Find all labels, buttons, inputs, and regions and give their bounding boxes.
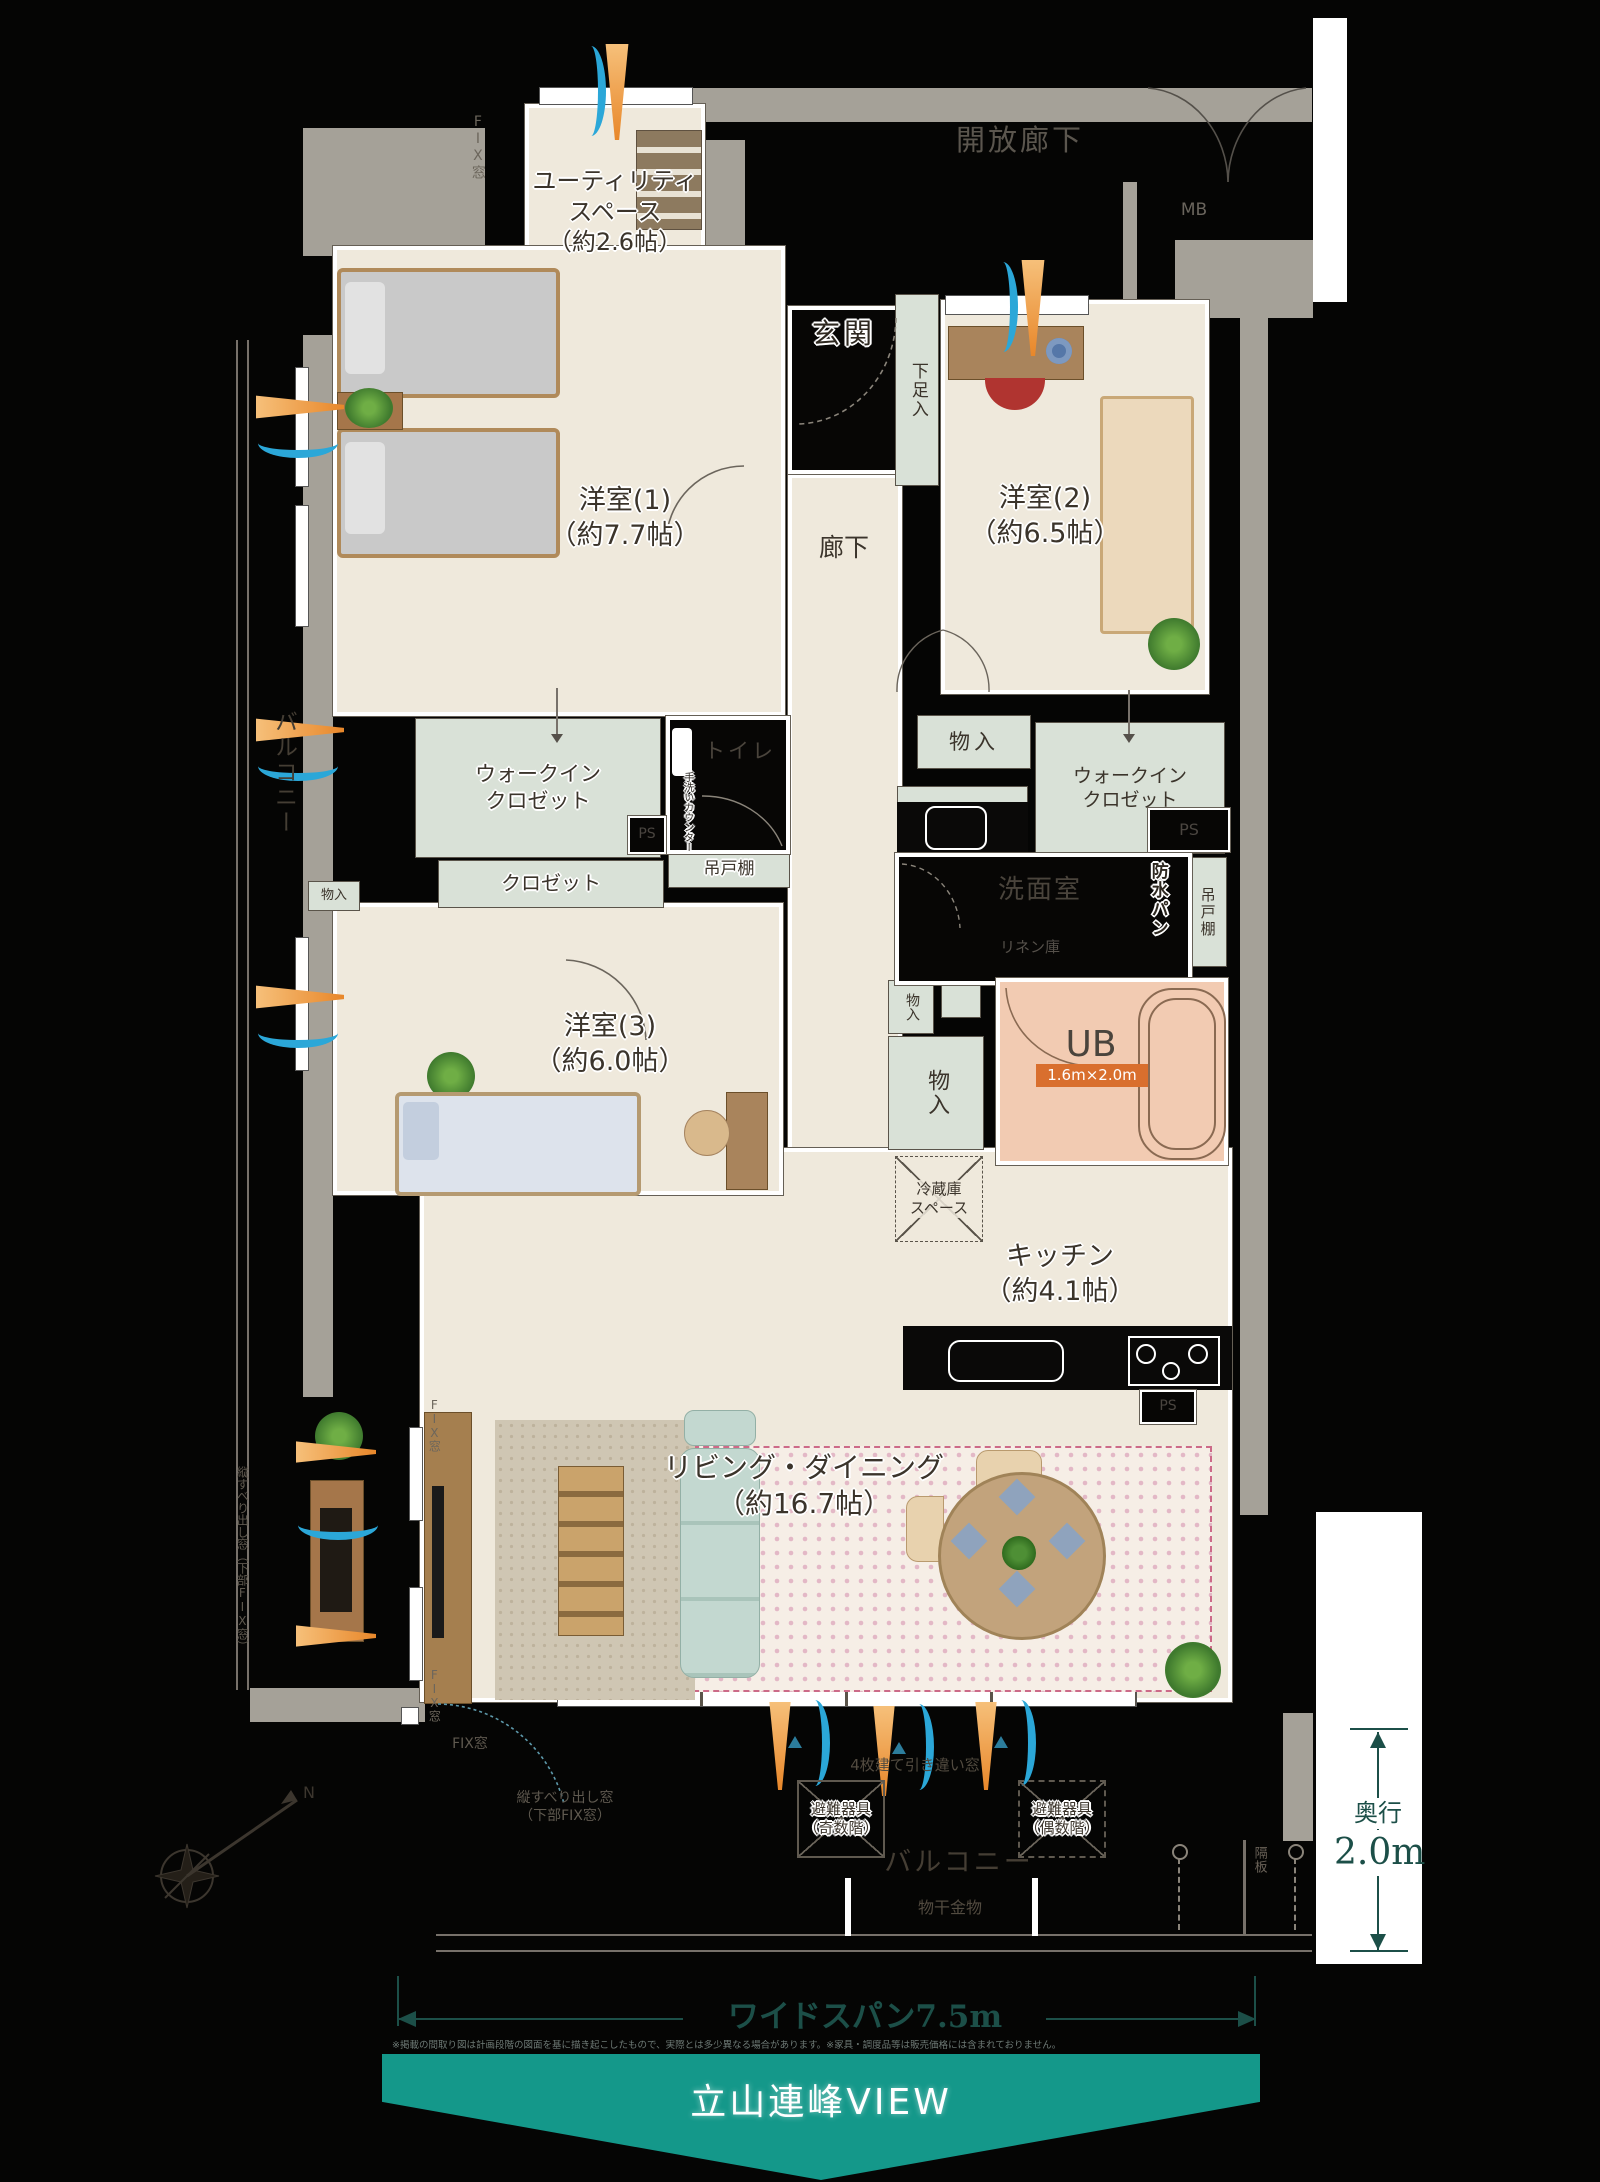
window-ld-left-upper (410, 1428, 422, 1520)
partition-divider (1243, 1840, 1246, 1935)
storage-top-label: 物入 (949, 729, 999, 756)
cupboard-toilet: 吊戸棚 (668, 852, 790, 888)
vent-blue-room1a (258, 428, 338, 458)
arc-mb-doors (1142, 84, 1312, 186)
room-corridor (788, 474, 902, 1156)
room2-label: 洋室(2)（約6.5帖） (910, 482, 1180, 551)
ps-box-a: PS (628, 816, 666, 854)
disclaimer-text: ※掲載の間取り図は計画段階の図面を基に描き起こしたもので、実際とは多少異なる場合… (392, 2040, 1258, 2052)
plant-room2 (1148, 618, 1200, 670)
shoe-box-label: 下足入 (906, 362, 928, 419)
widespan-arrow-right (1238, 2011, 1256, 2027)
desk-room3 (726, 1092, 768, 1190)
depth-arrow-up (1370, 1732, 1386, 1748)
stove-burner-1 (1136, 1344, 1156, 1364)
room1-label: 洋室(1)（約7.7帖） (455, 484, 795, 553)
closet-strip: クロゼット (438, 860, 664, 908)
window-room1-upper (296, 368, 308, 486)
storage-top: 物入 (917, 715, 1031, 769)
balcony-left-label: バルコニー (268, 710, 297, 835)
stove-burner-3 (1162, 1362, 1180, 1380)
floor-plan: ウォークインクロゼット クロゼット 物入 下足入 物入 ウォークインクロゼット … (0, 0, 1600, 2182)
laundry-pole-left (845, 1878, 851, 1936)
wall-strip-right (1240, 300, 1268, 1515)
bed-room3-pillow (403, 1102, 439, 1160)
shoe-box: 下足入 (895, 294, 939, 486)
balcony-bottom-label: バルコニー (874, 1846, 1044, 1881)
ps-box-kitchen: PS (1140, 1390, 1196, 1424)
depth-dim-tick-bottom (1350, 1950, 1408, 1952)
cd-player (1046, 338, 1072, 364)
depth-dim-tick-top (1350, 1728, 1408, 1730)
living-label: リビング・ダイニング（約16.7帖） (614, 1450, 994, 1522)
kitchen-sink (948, 1340, 1064, 1382)
fridge-space: 冷蔵庫スペース (895, 1156, 983, 1242)
view-banner: 立山連峰VIEW (382, 2054, 1260, 2180)
bed-2-pillow (345, 442, 385, 534)
wic-left: ウォークインクロゼット (415, 718, 661, 858)
fix-window-top-label: FIX窓 (468, 114, 486, 180)
room3-label: 洋室(3)（約6.0帖） (470, 1010, 750, 1079)
fix-window-ld-lower-label: FIX窓 (426, 1668, 441, 1722)
laundry-hardware-label: 物干金物 (900, 1898, 1000, 1918)
tv (432, 1486, 444, 1638)
wic-right-label: ウォークインクロゼット (1073, 764, 1187, 813)
depth-arrow-down (1370, 1934, 1386, 1950)
mb-label: MB (1172, 200, 1216, 222)
widespan-line-left (398, 2018, 683, 2020)
wall-pillar-mb (1123, 182, 1137, 300)
plant-ld-corner (1165, 1642, 1221, 1698)
storage-room3-label: 物入 (321, 888, 347, 905)
wic-right-arrow-line (1128, 690, 1130, 736)
white-column-bottom-right (1316, 1512, 1422, 1964)
compass-icon: N (125, 1778, 325, 1913)
fix-window-corner-label: FIX窓 (440, 1736, 500, 1754)
vent-blue-ld-2 (904, 1704, 934, 1790)
white-column-top-right (1313, 18, 1347, 302)
fix-window-ld-upper-label: FIX窓 (426, 1398, 441, 1452)
sofa-cushion (684, 1410, 756, 1446)
sliding-window4-label: 4枚建て引き違い窓 (845, 1756, 985, 1775)
ub-label: UB (1036, 1022, 1146, 1068)
wall-wedge-bottom-left (250, 1688, 425, 1722)
vent-blue-ld-3 (1006, 1700, 1036, 1786)
widespan-label: ワイドスパン7.5m (688, 1998, 1042, 2038)
evac-box-odd: 避難器具（奇数階） (797, 1780, 885, 1858)
table-plant (1002, 1536, 1036, 1570)
evac-odd-label: 避難器具（奇数階） (803, 1800, 878, 1838)
hanger-right-line (1294, 1858, 1296, 1930)
stove-burner-2 (1188, 1344, 1208, 1364)
chair-room3 (684, 1110, 730, 1156)
arc-washroom-door (898, 860, 964, 932)
vanity-sink (925, 806, 987, 850)
ps-b-label: PS (1179, 820, 1199, 840)
bed-1-pillow (345, 282, 385, 374)
ps-kitchen-label: PS (1159, 1398, 1176, 1416)
wic-left-arrow-line (556, 688, 558, 736)
depth-label: 奥行 (1342, 1798, 1414, 1829)
hallway-label: 廊下 (788, 532, 900, 564)
tate-window-label: 縦すべり出し窓（下部FIX窓） (490, 1790, 640, 1826)
linen-label: リネン庫 (975, 938, 1085, 957)
vent-blue-ld-left (298, 1510, 378, 1540)
wic-right-arrow-head (1123, 734, 1135, 743)
vent-teal-ld-1 (788, 1736, 802, 1748)
vent-blue-ld-1 (800, 1700, 830, 1786)
view-banner-label: 立山連峰VIEW (382, 2080, 1260, 2126)
ps-box-b: PS (1148, 808, 1230, 852)
bathtub-inner (1148, 998, 1216, 1150)
open-corridor-label: 開放廊下 (930, 122, 1110, 159)
genkan-label: 玄関 (796, 316, 892, 352)
wall-block-top-left (303, 128, 485, 256)
toilet-fixture (672, 728, 692, 776)
vent-teal-ld-2 (892, 1742, 906, 1754)
evac-even-label: 避難器具（偶数階） (1024, 1800, 1099, 1838)
vent-blue-utility (576, 46, 606, 136)
compass-n-glyph: N (303, 1783, 315, 1802)
window-room3 (296, 938, 308, 1070)
toilet-label: トイレ (694, 738, 786, 765)
cupboard-wash: 吊戸棚 (1187, 857, 1227, 967)
vent-teal-ld-3 (994, 1736, 1008, 1748)
ub-size-tag: 1.6m×2.0m (1036, 1064, 1148, 1087)
widespan-line-right (1046, 2018, 1256, 2020)
ps-a-label: PS (638, 826, 655, 844)
vent-blue-room3 (258, 1018, 338, 1048)
storage-big: 物入 (888, 1036, 984, 1150)
storage-small: 物入 (888, 980, 934, 1034)
widespan-arrow-left (398, 2011, 416, 2027)
tate-window-side-label: 縦すべり出し窓（下部FIX窓） (234, 1466, 249, 1652)
hanger-left-ring (1172, 1844, 1188, 1860)
hanger-right-ring (1288, 1844, 1304, 1860)
plant-room1-leaves (345, 388, 393, 428)
partition-label: 隔板 (1250, 1846, 1267, 1874)
window-ld-left-lower (410, 1588, 422, 1680)
cupboard-wash-label: 吊戸棚 (1197, 887, 1216, 938)
arc-room2-fold-doors (893, 626, 993, 696)
utility-label: ユーティリティスペース（約2.6帖） (520, 166, 710, 258)
vent-blue-genkan (988, 262, 1018, 352)
hand-wash-label: 手洗いカウンター (680, 772, 693, 852)
closet-label: クロゼット (501, 871, 601, 897)
wall-stub-bottom-right (1283, 1713, 1313, 1841)
wic-left-label: ウォークインクロゼット (475, 761, 601, 815)
laundry-pole-right (1032, 1878, 1038, 1936)
wic-left-arrow-head (551, 734, 563, 743)
fridge-space-label: 冷蔵庫スペース (910, 1180, 968, 1218)
kitchen-label: キッチン（約4.1帖） (950, 1240, 1170, 1309)
window-corner-post (402, 1708, 418, 1724)
railing-bottom-inner (436, 1950, 1312, 1952)
hanger-left-line (1178, 1858, 1180, 1930)
storage-big-label: 物入 (922, 1069, 950, 1117)
railing-bottom-outer (436, 1934, 1312, 1936)
arc-toilet-door (698, 792, 786, 850)
cupboard-toilet-label: 吊戸棚 (704, 859, 755, 881)
depth-value: 2.0m (1334, 1830, 1422, 1876)
wall-strip-left (303, 335, 333, 1397)
washroom-label: 洗面室 (965, 874, 1115, 907)
storage-small-label: 物入 (902, 993, 920, 1021)
storage-room3: 物入 (308, 881, 360, 911)
waterproof-pan-label: 防水パン (1146, 862, 1168, 938)
window-room1-lower (296, 506, 308, 626)
